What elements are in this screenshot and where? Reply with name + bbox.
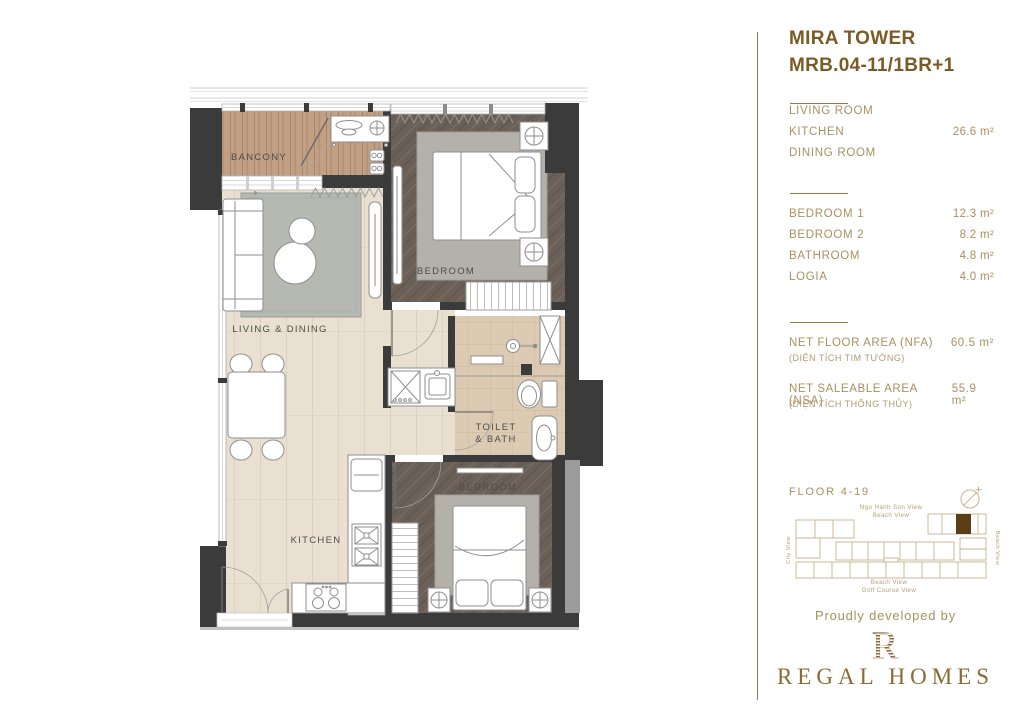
developer-brand-name: REGAL HOMES [768, 664, 1003, 690]
toilet-label-line2: & BATH [475, 434, 516, 445]
floor-plan-drawing: BANCONY LIVING & DINING BEDROOM TOILET &… [183, 80, 603, 646]
developer-tagline: Proudly developed by [768, 608, 1003, 623]
bedroom1-label: BEDROOM [417, 266, 475, 277]
brochure-page: BANCONY LIVING & DINING BEDROOM TOILET &… [0, 0, 1024, 724]
stove [306, 584, 346, 611]
room-area: 8.2 m² [960, 229, 994, 245]
bedroom2-wardrobe [392, 523, 418, 613]
room-label: BEDROOM 1 [789, 208, 864, 224]
room-area: 4.0 m² [960, 271, 994, 287]
nfa-sublabel: (DIỆN TÍCH TIM TƯỜNG) [789, 353, 994, 363]
coffee-table [274, 242, 316, 284]
keyplan-bottom-label-1: Beach View [871, 579, 908, 586]
divider-2 [790, 193, 848, 194]
area-row: LIVING ROOM [789, 105, 994, 121]
divider-3 [790, 322, 848, 323]
room-label: DINING ROOM [789, 147, 876, 163]
room-area: 4.8 m² [960, 250, 994, 266]
living-dining-label: LIVING & DINING [232, 324, 328, 335]
side-table [289, 218, 315, 244]
area-row: DINING ROOM [789, 147, 994, 163]
keyplan-bottom-label-2: Golf Course View [862, 587, 917, 592]
divider-1 [790, 103, 848, 104]
nfa-label: NET FLOOR AREA (NFA) [789, 337, 933, 349]
keyplan-left-label: City View [786, 536, 792, 564]
keyplan-top-label-1: Ngu Hanh Son View [860, 504, 923, 511]
site-boundary-lines [190, 88, 588, 102]
area-row: BEDROOM 1 12.3 m² [789, 208, 994, 224]
keyplan-right-label: Beach View [994, 531, 1000, 566]
floor-plan-area: BANCONY LIVING & DINING BEDROOM TOILET &… [183, 80, 603, 646]
sofa [223, 199, 263, 311]
floor-range-label: FLOOR 4-19 [789, 486, 870, 498]
nfa-row: NET FLOOR AREA (NFA) 60.5 m² [789, 337, 994, 349]
kitchen-label: KITCHEN [291, 535, 342, 546]
room-label: KITCHEN [789, 126, 844, 142]
nfa-value: 60.5 m² [951, 337, 994, 349]
keyplan-building-outline [796, 514, 986, 578]
toilet-label-line1: TOILET [476, 422, 517, 433]
room-label: LIVING ROOM [789, 105, 873, 121]
bedroom1-window [391, 104, 545, 114]
area-row: BATHROOM 4.8 m² [789, 250, 994, 266]
building-name: MIRA TOWER [789, 25, 1009, 52]
bedroom1-wardrobe [466, 282, 551, 310]
keyplan-top-label-2: Beach View [873, 512, 910, 519]
room-area: 26.6 m² [953, 126, 994, 142]
tv-console [369, 202, 381, 298]
area-row: LOGIA 4.0 m² [789, 271, 994, 287]
balcony-label: BANCONY [231, 152, 287, 163]
area-row: KITCHEN 26.6 m² [789, 126, 994, 142]
keyplan-unit-highlight [956, 514, 971, 534]
bedroom2-label: BEDROOM [459, 482, 517, 493]
unit-title: MIRA TOWER MRB.04-11/1BR+1 [789, 25, 1009, 79]
unit-code: MRB.04-11/1BR+1 [789, 52, 1009, 79]
nsa-sublabel: (DIỆN TÍCH THÔNG THỦY) [789, 399, 994, 409]
logo-letter: R [872, 626, 899, 666]
key-plan: Ngu Hanh Son View Beach View Beach View … [784, 500, 1000, 592]
room-label: BATHROOM [789, 250, 860, 266]
area-row: BEDROOM 2 8.2 m² [789, 229, 994, 245]
utility-counter [388, 368, 455, 406]
sidebar-divider-line [757, 32, 758, 700]
room-label: LOGIA [789, 271, 828, 287]
room-area: 12.3 m² [953, 208, 994, 224]
regal-homes-logo-icon: R [855, 626, 915, 666]
room-label: BEDROOM 2 [789, 229, 864, 245]
